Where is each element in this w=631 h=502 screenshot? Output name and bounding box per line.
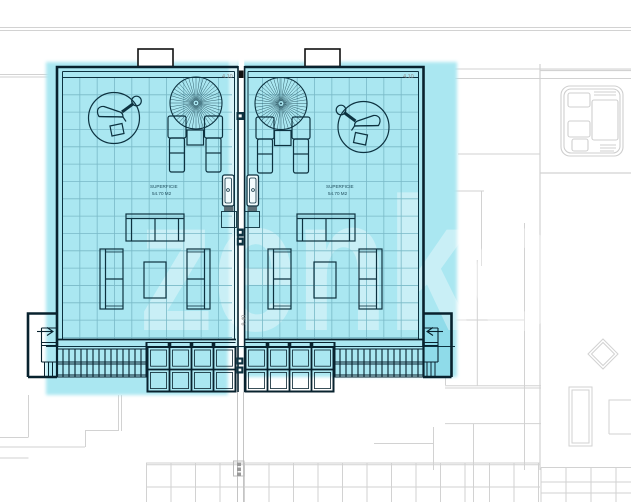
svg-text:4.10: 4.10	[403, 74, 414, 80]
svg-text:SUPERFICIE: SUPERFICIE	[326, 184, 354, 189]
svg-text:54.70 M2: 54.70 M2	[152, 191, 172, 196]
svg-text:SUPERFICIE: SUPERFICIE	[150, 184, 178, 189]
svg-text:9.40: 9.40	[242, 315, 248, 326]
svg-text:4.10: 4.10	[222, 74, 233, 80]
svg-text:54.70 M2: 54.70 M2	[328, 191, 348, 196]
